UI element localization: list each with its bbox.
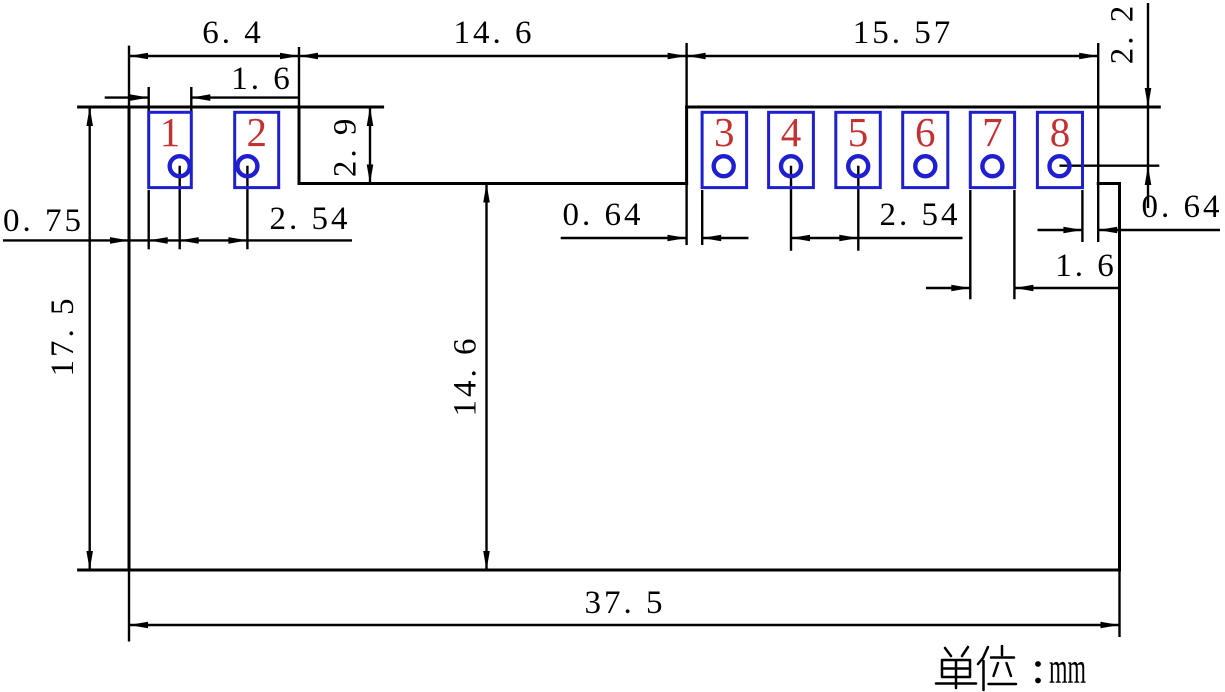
svg-text:1. 6: 1. 6	[231, 61, 293, 97]
svg-text:7: 7	[982, 109, 1003, 155]
svg-text:2. 2: 2. 2	[1105, 3, 1141, 65]
svg-text:15. 57: 15. 57	[853, 15, 954, 51]
svg-text:14. 6: 14. 6	[448, 336, 484, 417]
svg-text:2. 54: 2. 54	[270, 201, 351, 237]
svg-text:3: 3	[714, 109, 735, 155]
svg-text:37. 5: 37. 5	[585, 585, 666, 621]
svg-text:mm: mm	[1049, 644, 1086, 692]
svg-text:14. 6: 14. 6	[454, 15, 535, 51]
svg-text:1: 1	[160, 109, 181, 155]
svg-text:0. 75: 0. 75	[3, 203, 84, 239]
svg-text:5: 5	[848, 109, 869, 155]
svg-text:6. 4: 6. 4	[202, 15, 264, 51]
svg-text:6: 6	[915, 109, 936, 155]
svg-text:2: 2	[246, 109, 267, 155]
svg-text:2. 54: 2. 54	[880, 197, 961, 233]
svg-text:1. 6: 1. 6	[1055, 248, 1117, 284]
svg-text:17. 5: 17. 5	[45, 296, 81, 377]
svg-text:4: 4	[781, 109, 802, 155]
svg-text:0. 64: 0. 64	[563, 197, 644, 233]
svg-text:0. 64: 0. 64	[1142, 189, 1223, 225]
svg-text:2. 9: 2. 9	[327, 116, 363, 178]
svg-text:8: 8	[1050, 109, 1071, 155]
